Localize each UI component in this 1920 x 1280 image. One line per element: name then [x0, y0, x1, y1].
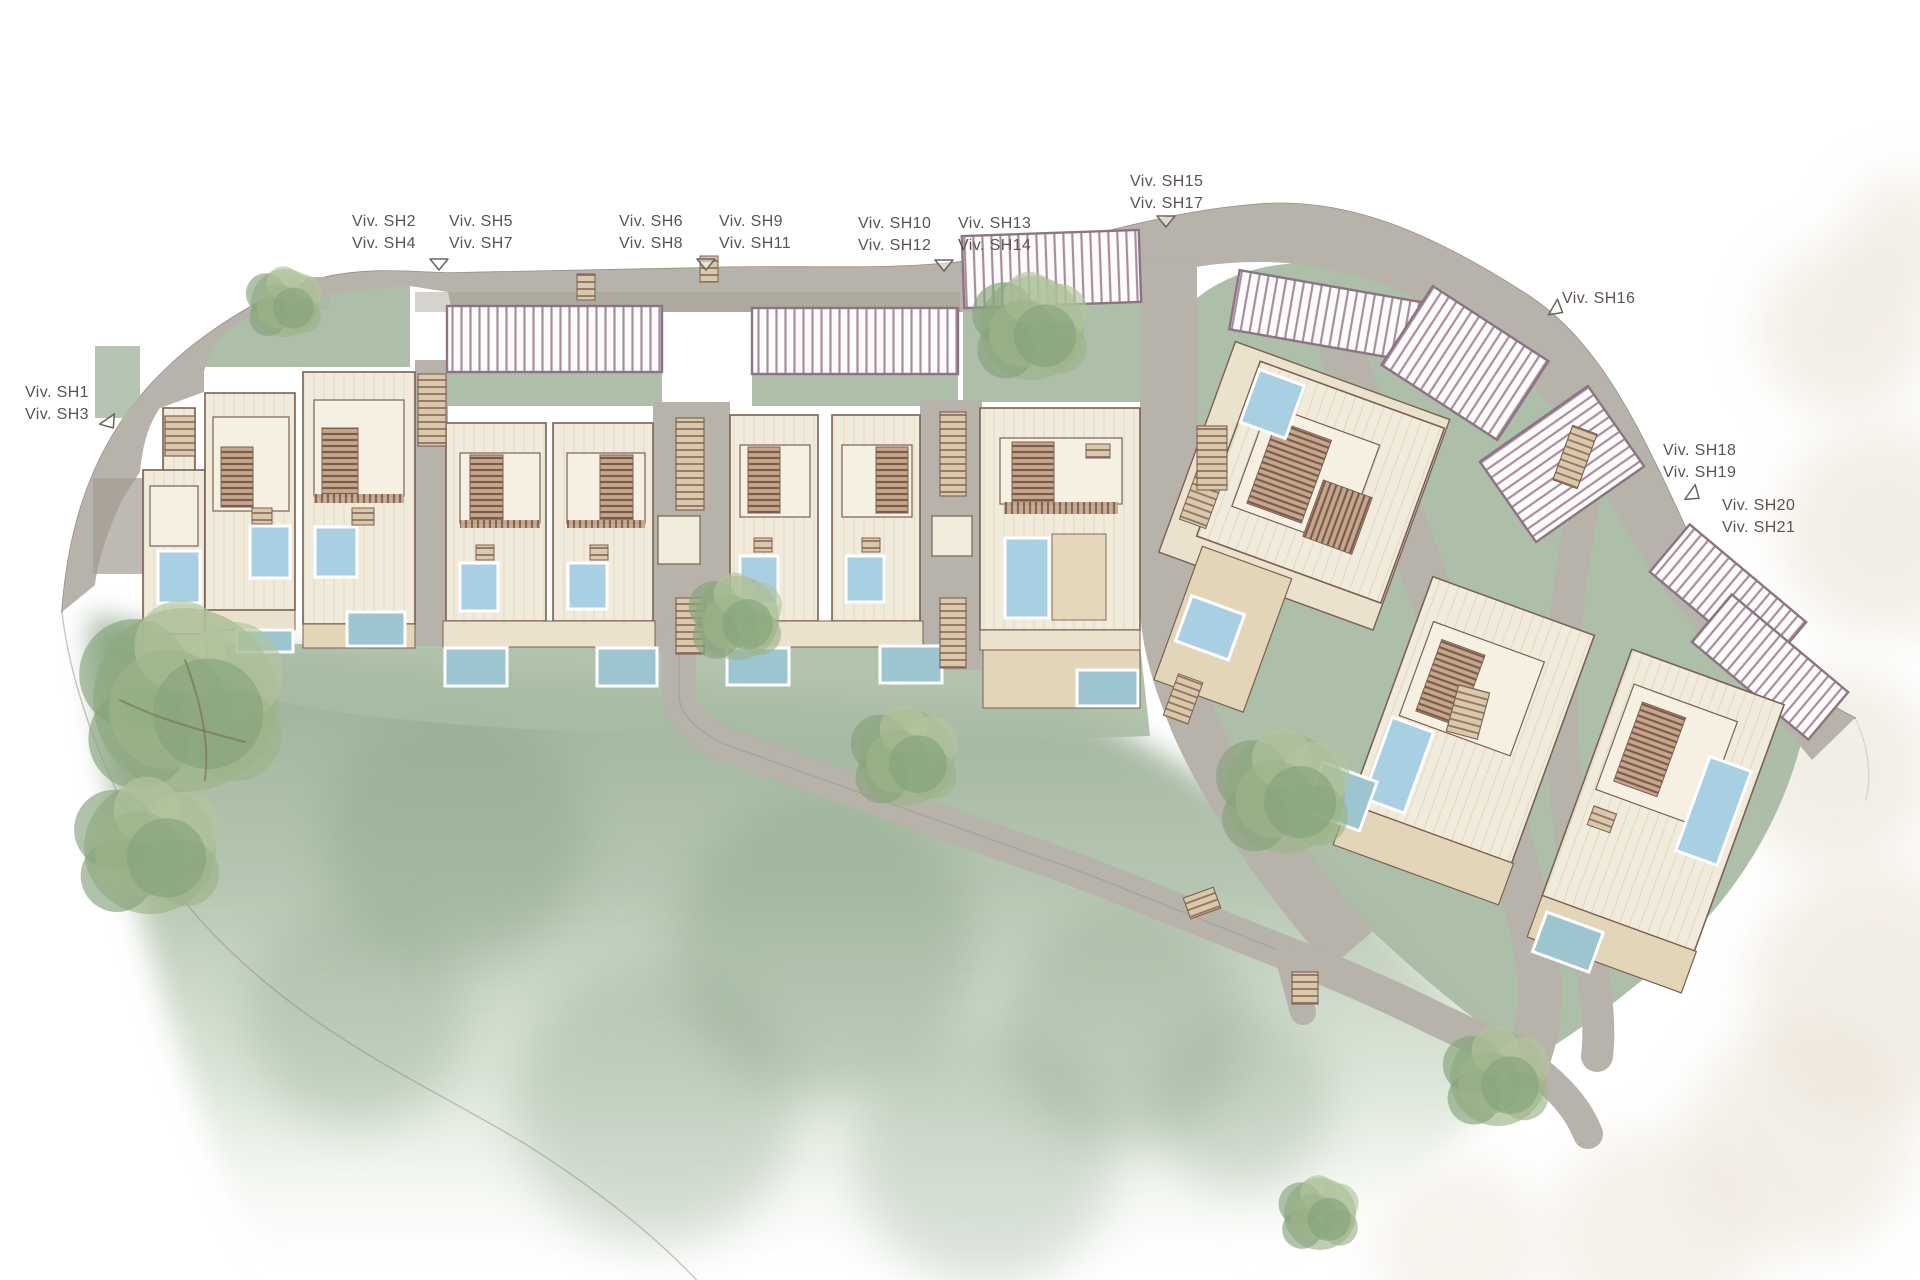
- plan-rect: [1292, 972, 1318, 1004]
- unit-label-sh2-sh4: Viv. SH2Viv. SH4: [352, 213, 416, 252]
- unit-label-line: Viv. SH12: [858, 237, 931, 254]
- triangle-marker-icon: [430, 259, 448, 270]
- unit-label-line: Viv. SH18: [1663, 442, 1736, 459]
- pergola-canopy: [752, 308, 958, 374]
- swimming-pool: [846, 556, 884, 602]
- plan-rect: [1197, 426, 1227, 490]
- tree-blob: [153, 659, 263, 769]
- unit-label-line: Viv. SH9: [719, 213, 783, 230]
- unit-label-sh15-sh17: Viv. SH15Viv. SH17: [1130, 173, 1203, 212]
- unit-label-line: Viv. SH17: [1130, 195, 1203, 212]
- plan-rect: [443, 621, 655, 647]
- garden-pool: [880, 646, 942, 683]
- plan-rect: [862, 538, 880, 552]
- tree-canopy: [851, 705, 958, 805]
- plan-rect: [352, 508, 374, 525]
- tree-blob: [722, 599, 772, 649]
- plan-rect: [940, 412, 966, 496]
- tree-blob: [1481, 1056, 1539, 1114]
- plan-rect: [418, 374, 446, 446]
- unit-label-line: Viv. SH10: [858, 215, 931, 232]
- garden-pool: [1077, 670, 1138, 706]
- unit-label-sh10-sh12: Viv. SH10Viv. SH12: [858, 215, 931, 254]
- wash-blob: [855, 1025, 1115, 1280]
- unit-label-sh5-sh7: Viv. SH5Viv. SH7: [449, 213, 513, 252]
- swimming-pool: [1005, 538, 1049, 618]
- plan-rect: [932, 516, 972, 556]
- tree-canopy: [972, 272, 1087, 380]
- plan-rect: [658, 516, 700, 564]
- triangle-marker-icon: [1685, 485, 1704, 506]
- swimming-pool: [568, 563, 607, 609]
- tree-blob: [1264, 766, 1336, 838]
- plan-rect: [221, 447, 253, 507]
- plan-rect: [150, 486, 198, 546]
- plan-rect: [1052, 534, 1106, 620]
- unit-label-line: Viv. SH8: [619, 235, 683, 252]
- unit-label-sh1-sh3: Viv. SH1Viv. SH3: [25, 384, 89, 423]
- tree-canopy: [689, 573, 782, 660]
- plan-rect: [165, 416, 195, 456]
- site-plan: Viv. SH1Viv. SH3Viv. SH2Viv. SH4Viv. SH5…: [0, 0, 1920, 1280]
- garden-pool: [347, 612, 405, 646]
- unit-label-line: Viv. SH14: [958, 237, 1031, 254]
- plan-rect: [754, 538, 772, 552]
- plan-rect: [470, 455, 503, 520]
- unit-label-line: Viv. SH13: [958, 215, 1031, 232]
- unit-label-line: Viv. SH11: [719, 235, 791, 252]
- unit-label-sh16: Viv. SH16: [1562, 290, 1635, 307]
- unit-label-line: Viv. SH2: [352, 213, 416, 230]
- unit-label-line: Viv. SH19: [1663, 464, 1736, 481]
- tree-canopy: [246, 266, 321, 337]
- plan-rect: [1004, 502, 1118, 514]
- wash-blob: [1780, 425, 1920, 635]
- site-plan-svg: Viv. SH1Viv. SH3Viv. SH2Viv. SH4Viv. SH5…: [0, 0, 1920, 1280]
- swimming-pool: [250, 526, 290, 578]
- pergola-canopy: [447, 306, 662, 372]
- plan-rect: [876, 447, 908, 513]
- tree-blob: [1307, 1198, 1350, 1241]
- swimming-pool: [158, 551, 200, 603]
- plan-rect: [460, 520, 540, 528]
- tree-canopy: [1279, 1175, 1359, 1250]
- tree-blob: [273, 288, 314, 329]
- plan-rect: [940, 598, 966, 668]
- plan-rect: [322, 428, 358, 494]
- plan-rect: [1086, 444, 1110, 458]
- unit-label-line: Viv. SH1: [25, 384, 89, 401]
- tree-canopy: [1443, 1026, 1550, 1126]
- plan-rect: [93, 478, 143, 574]
- plan-rect: [447, 370, 662, 406]
- garden-pool: [597, 648, 657, 686]
- plan-rect: [748, 447, 780, 513]
- plan-rect: [590, 545, 608, 560]
- plan-rect: [577, 274, 595, 300]
- unit-label-line: Viv. SH20: [1722, 497, 1795, 514]
- tree-canopy: [1216, 728, 1349, 853]
- unit-label-line: Viv. SH6: [619, 213, 683, 230]
- plan-rect: [252, 508, 272, 524]
- tree-blob: [889, 735, 947, 793]
- unit-label-line: Viv. SH5: [449, 213, 513, 230]
- unit-label-line: Viv. SH3: [25, 406, 89, 423]
- unit-label-line: Viv. SH15: [1130, 173, 1203, 190]
- plan-rect: [676, 418, 704, 510]
- wash-blob: [1150, 1010, 1330, 1190]
- tree-blob: [1014, 305, 1076, 367]
- unit-label-line: Viv. SH4: [352, 235, 416, 252]
- plan-rect: [1012, 442, 1054, 502]
- wash-blob: [515, 965, 795, 1245]
- tree-canopy: [74, 777, 221, 914]
- tree-canopy: [79, 601, 283, 792]
- unit-label-sh9-sh11: Viv. SH9Viv. SH11: [719, 213, 791, 252]
- unit-label-sh6-sh8: Viv. SH6Viv. SH8: [619, 213, 683, 252]
- garden-pool: [445, 648, 507, 686]
- plan-rect: [314, 494, 404, 503]
- plan-rect: [567, 520, 645, 528]
- plan-rect: [980, 630, 1140, 650]
- unit-label-line: Viv. SH16: [1562, 290, 1635, 307]
- unit-label-sh18-sh19: Viv. SH18Viv. SH19: [1663, 442, 1736, 481]
- swimming-pool: [460, 563, 498, 611]
- swimming-pool: [315, 527, 357, 577]
- tree-blob: [127, 818, 206, 897]
- wash-blob: [245, 905, 465, 1125]
- plan-rect: [600, 455, 633, 520]
- unit-label-line: Viv. SH21: [1722, 519, 1795, 536]
- unit-label-line: Viv. SH7: [449, 235, 513, 252]
- plan-rect: [476, 545, 494, 560]
